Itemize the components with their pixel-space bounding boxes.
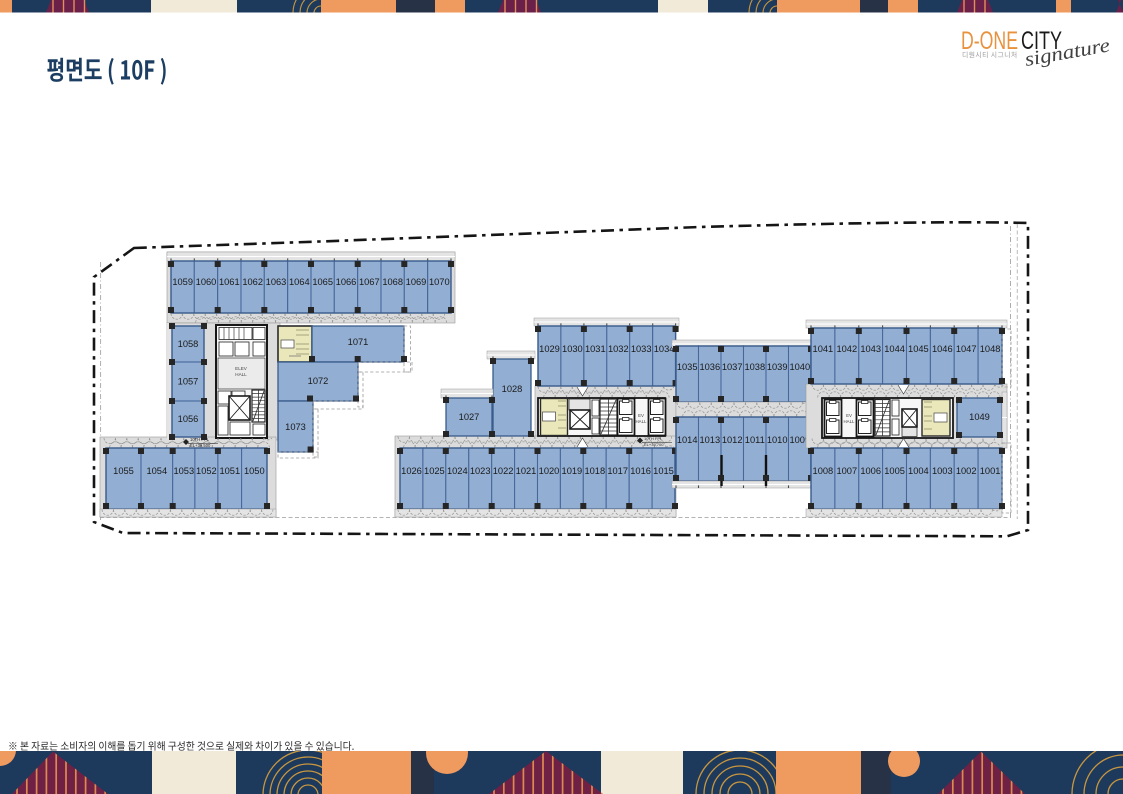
svg-text:1003: 1003 [932, 466, 953, 476]
svg-text:1053: 1053 [173, 466, 194, 476]
svg-text:10TH FPL: 10TH FPL [644, 436, 663, 441]
svg-text:1047: 1047 [956, 344, 977, 354]
svg-text:1073: 1073 [285, 422, 306, 432]
svg-text:1017: 1017 [607, 466, 628, 476]
svg-text:ELEV: ELEV [235, 366, 248, 371]
svg-text:1005: 1005 [884, 466, 905, 476]
svg-text:1054: 1054 [146, 466, 167, 476]
svg-text:1034: 1034 [654, 344, 675, 354]
svg-text:1042: 1042 [836, 344, 857, 354]
svg-text:1022: 1022 [493, 466, 514, 476]
svg-text:1024: 1024 [447, 466, 468, 476]
svg-text:1062: 1062 [242, 277, 263, 287]
svg-text:1013: 1013 [699, 435, 720, 445]
svg-text:1039: 1039 [767, 362, 788, 372]
svg-text:1021: 1021 [516, 466, 537, 476]
svg-text:1067: 1067 [359, 277, 380, 287]
svg-text:1072: 1072 [308, 376, 329, 386]
svg-text:1040: 1040 [789, 362, 810, 372]
svg-text:EV: EV [638, 413, 644, 418]
svg-text:1029: 1029 [539, 344, 560, 354]
svg-text:1050: 1050 [244, 466, 265, 476]
svg-text:D-ONE: D-ONE [961, 27, 1018, 55]
svg-text:1041: 1041 [813, 344, 834, 354]
svg-text:HALL: HALL [636, 419, 648, 424]
svg-text:1065: 1065 [312, 277, 333, 287]
svg-text:1045: 1045 [908, 344, 929, 354]
svg-text:1037: 1037 [722, 362, 743, 372]
svg-text:1012: 1012 [722, 435, 743, 445]
svg-text:1049: 1049 [969, 412, 990, 422]
svg-text:EV: EV [846, 413, 852, 418]
svg-text:1032: 1032 [608, 344, 629, 354]
svg-text:1008: 1008 [813, 466, 834, 476]
svg-text:1043: 1043 [860, 344, 881, 354]
svg-text:1027: 1027 [459, 412, 480, 422]
svg-text:1048: 1048 [980, 344, 1001, 354]
svg-text:1010: 1010 [767, 435, 788, 445]
svg-text:1014: 1014 [677, 435, 698, 445]
svg-text:1028: 1028 [502, 384, 523, 394]
svg-text:1044: 1044 [884, 344, 905, 354]
svg-text:HALL: HALL [235, 372, 247, 377]
svg-text:1031: 1031 [585, 344, 606, 354]
svg-text:1057: 1057 [178, 377, 199, 387]
svg-text:1020: 1020 [539, 466, 560, 476]
svg-text:1058: 1058 [178, 339, 199, 349]
svg-text:1001: 1001 [980, 466, 1001, 476]
svg-text:1071: 1071 [348, 337, 369, 347]
svg-text:1046: 1046 [932, 344, 953, 354]
svg-text:1059: 1059 [172, 277, 193, 287]
svg-text:1018: 1018 [584, 466, 605, 476]
svg-text:1030: 1030 [562, 344, 583, 354]
svg-text:1060: 1060 [196, 277, 217, 287]
svg-text:1016: 1016 [630, 466, 651, 476]
svg-text:1026: 1026 [401, 466, 422, 476]
svg-text:1015: 1015 [653, 466, 674, 476]
svg-text:1055: 1055 [113, 466, 134, 476]
svg-text:HALL: HALL [844, 419, 856, 424]
svg-text:1019: 1019 [562, 466, 583, 476]
svg-text:1038: 1038 [744, 362, 765, 372]
svg-text:1070: 1070 [429, 277, 450, 287]
svg-text:1051: 1051 [219, 466, 240, 476]
svg-text:1061: 1061 [219, 277, 240, 287]
svg-text:1068: 1068 [382, 277, 403, 287]
svg-text:1035: 1035 [677, 362, 698, 372]
svg-text:1066: 1066 [336, 277, 357, 287]
svg-text:1006: 1006 [860, 466, 881, 476]
svg-text:1056: 1056 [178, 414, 199, 424]
svg-text:1002: 1002 [956, 466, 977, 476]
svg-text:1069: 1069 [406, 277, 427, 287]
svg-text:1007: 1007 [836, 466, 857, 476]
svg-text:1036: 1036 [699, 362, 720, 372]
svg-text:1023: 1023 [470, 466, 491, 476]
svg-text:1025: 1025 [424, 466, 445, 476]
svg-text:1011: 1011 [745, 435, 765, 445]
svg-text:1033: 1033 [631, 344, 652, 354]
svg-text:1063: 1063 [266, 277, 287, 287]
svg-text:1004: 1004 [908, 466, 929, 476]
svg-text:1052: 1052 [196, 466, 217, 476]
svg-text:1064: 1064 [289, 277, 310, 287]
